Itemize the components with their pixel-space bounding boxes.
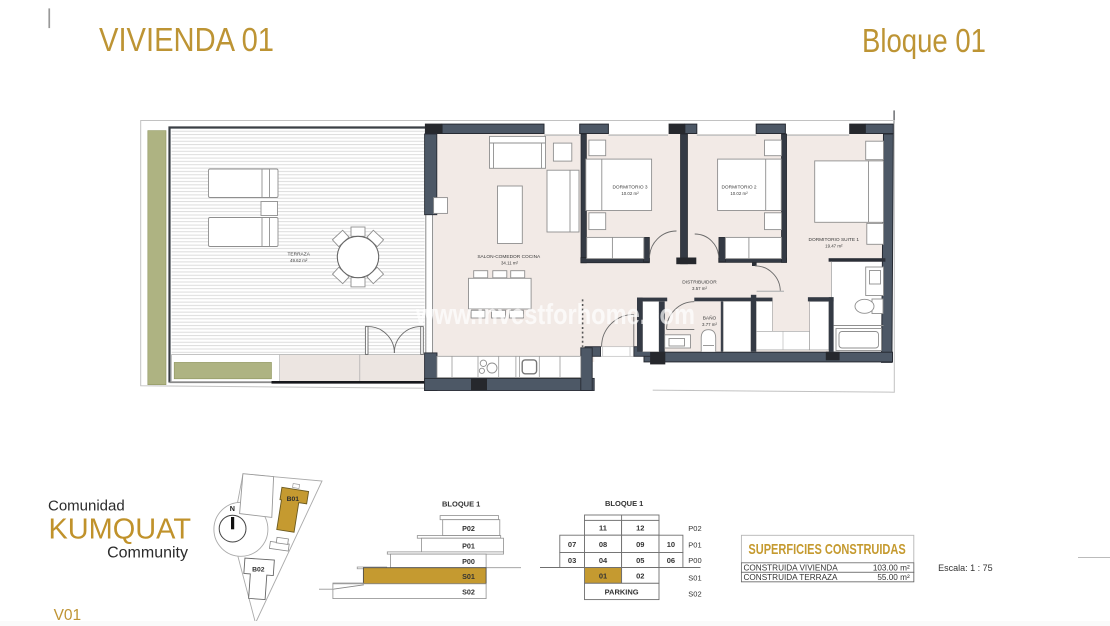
svg-text:01: 01 [599,572,607,581]
svg-text:S01: S01 [688,574,701,583]
svg-text:S02: S02 [462,587,475,596]
svg-text:P00: P00 [462,557,475,566]
svg-text:P01: P01 [688,541,701,550]
svg-text:N: N [230,504,235,513]
svg-text:B01: B01 [287,496,300,503]
svg-text:KUMQUAT: KUMQUAT [49,514,192,546]
svg-text:BLOQUE 1: BLOQUE 1 [442,500,480,509]
svg-text:CONSTRUIDA TERRAZA: CONSTRUIDA TERRAZA [744,573,839,582]
svg-text:P00: P00 [688,556,701,565]
svg-text:103.00 m²: 103.00 m² [873,564,910,573]
svg-text:DORMITORIO SUITE 1: DORMITORIO SUITE 1 [809,237,860,243]
svg-text:03: 03 [568,556,576,565]
svg-text:04: 04 [599,556,608,565]
svg-text:49.62 m²: 49.62 m² [290,258,308,263]
svg-text:BLOQUE 1: BLOQUE 1 [605,499,643,508]
svg-text:55.00 m²: 55.00 m² [877,573,910,582]
svg-text:34.11 m²: 34.11 m² [501,261,519,266]
svg-text:05: 05 [636,556,644,565]
svg-text:09: 09 [636,540,644,549]
svg-text:3.77 m²: 3.77 m² [702,322,717,327]
svg-text:P01: P01 [462,541,475,550]
svg-text:10.02 m²: 10.02 m² [621,191,639,196]
svg-text:CONSTRUIDA VIVIENDA: CONSTRUIDA VIVIENDA [744,564,839,573]
svg-text:07: 07 [568,540,576,549]
svg-text:10.02 m²: 10.02 m² [730,191,748,196]
svg-text:S01: S01 [462,572,475,581]
svg-text:S02: S02 [688,589,701,598]
svg-text:B02: B02 [252,567,265,574]
svg-text:11: 11 [599,524,607,533]
svg-text:06: 06 [667,556,675,565]
svg-text:02: 02 [636,572,644,581]
svg-text:Bloque 01: Bloque 01 [862,22,986,59]
svg-text:08: 08 [599,540,607,549]
svg-text:DORMITORIO 3: DORMITORIO 3 [612,184,647,190]
svg-text:19.47 m²: 19.47 m² [825,243,843,248]
svg-text:3.57 m²: 3.57 m² [692,286,707,291]
svg-text:BAÑO: BAÑO [703,315,717,322]
svg-text:DORMITORIO 2: DORMITORIO 2 [721,184,756,190]
svg-text:PARKING: PARKING [605,588,639,597]
svg-text:Comunidad: Comunidad [48,498,125,515]
svg-text:VIVIENDA 01: VIVIENDA 01 [99,21,274,58]
svg-text:Community: Community [107,545,188,562]
svg-text:Escala: 1 : 75: Escala: 1 : 75 [938,563,993,573]
svg-text:P02: P02 [462,524,475,533]
svg-text:12: 12 [636,524,644,533]
svg-text:TERRAZA: TERRAZA [288,252,311,258]
svg-text:www.investforhome.com: www.investforhome.com [415,299,695,331]
svg-text:SUPERFICIES CONSTRUIDAS: SUPERFICIES CONSTRUIDAS [748,541,905,558]
svg-text:P02: P02 [688,524,701,533]
svg-text:10: 10 [667,540,675,549]
svg-text:SALON-COMEDOR COCINA: SALON-COMEDOR COCINA [477,254,541,260]
svg-text:DISTRIBUIDOR: DISTRIBUIDOR [682,280,717,286]
